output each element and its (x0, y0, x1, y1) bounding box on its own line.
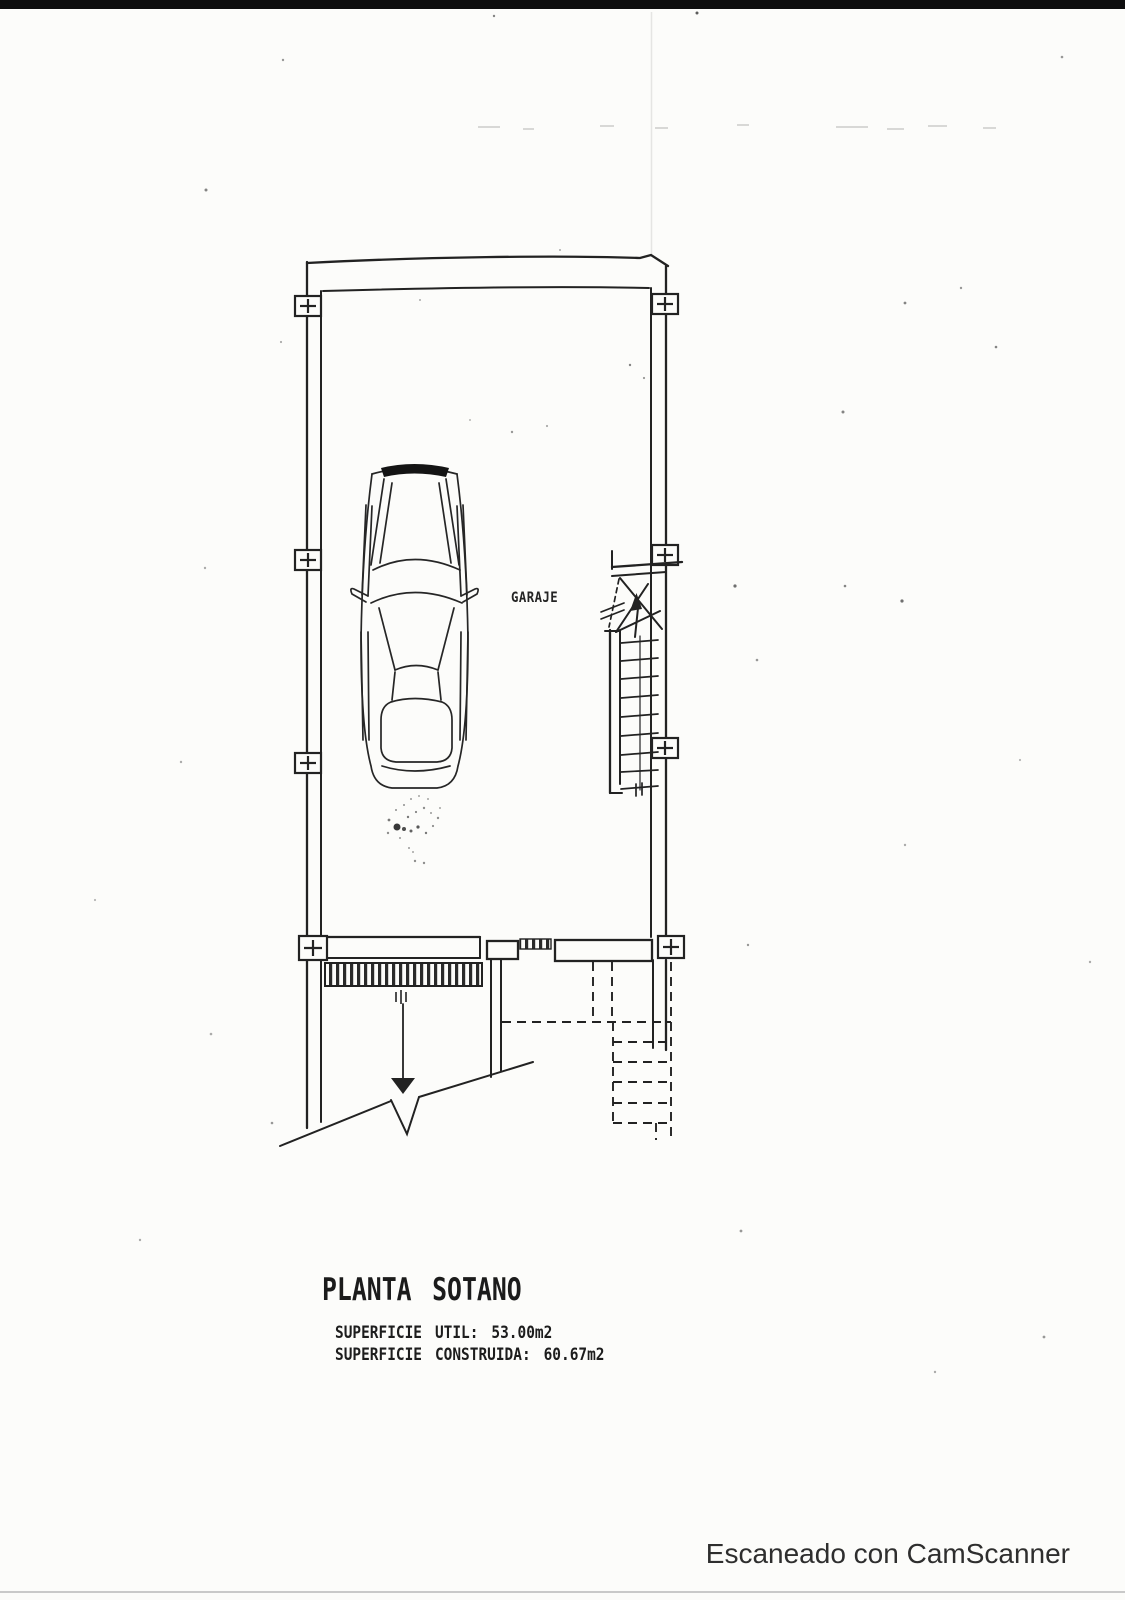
plan-title: PLANTA SOTANO (322, 1272, 522, 1308)
superficie-construida: SUPERFICIE CONSTRUIDA: 60.67m2 (335, 1344, 604, 1366)
ramp-break-mark (391, 1097, 419, 1134)
superficie-util: SUPERFICIE UTIL: 53.00m2 (335, 1322, 604, 1344)
car-right-mirror (461, 589, 478, 602)
garage-door-hatch (325, 963, 482, 1004)
scanned-page: GARAJE PLANTA SOTANO SUPERFICIE UTIL: 53… (0, 0, 1125, 1600)
column-marker (299, 936, 327, 960)
car-left-mirror (351, 589, 368, 602)
scan-bottom-rule (0, 1591, 1125, 1593)
area-summary: SUPERFICIE UTIL: 53.00m2 SUPERFICIE CONS… (335, 1322, 604, 1366)
scan-artifacts (94, 12, 1091, 1374)
car-rear-window-strip (381, 464, 449, 477)
exterior-stairs-dashed (502, 962, 671, 1142)
ramp-direction-arrow (391, 1004, 415, 1094)
column-marker (295, 550, 321, 570)
column-marker (652, 738, 678, 758)
column-marker (652, 294, 678, 314)
bottom-wall-vent-hatch (520, 939, 551, 949)
staircase (601, 551, 682, 796)
floor-stain-speckles (387, 795, 441, 864)
garage-walls (307, 255, 668, 1128)
camscanner-watermark: Escaneado con CamScanner (706, 1538, 1070, 1570)
entry-ramp (280, 1004, 533, 1146)
column-marker (658, 936, 684, 958)
column-marker (295, 296, 321, 316)
stair-direction-arrow (630, 593, 642, 637)
room-label: GARAJE (511, 590, 558, 606)
column-marker (295, 753, 321, 773)
car-top-view (351, 464, 478, 788)
